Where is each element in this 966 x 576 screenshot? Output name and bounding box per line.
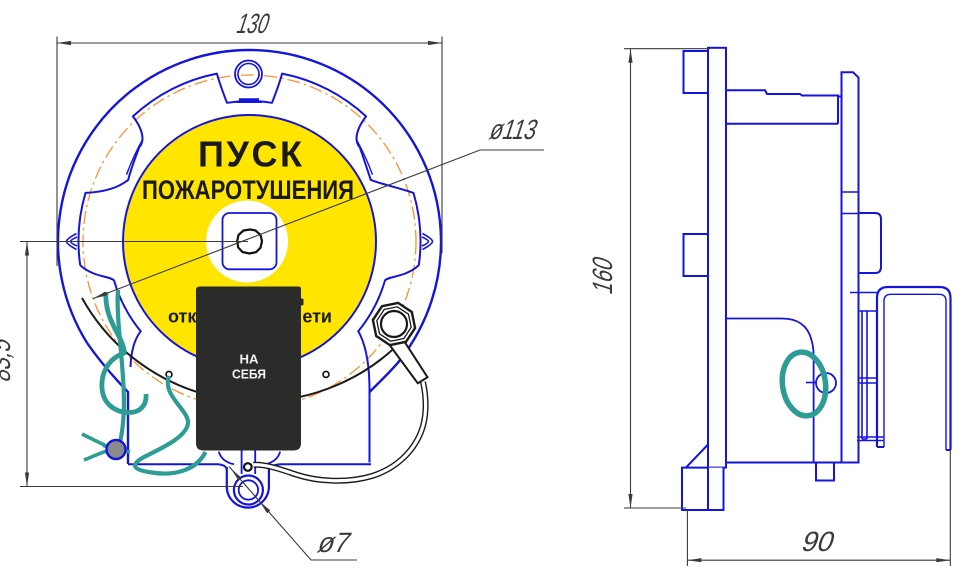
svg-text:ø113: ø113 [486, 115, 542, 146]
svg-text:НА: НА [240, 352, 260, 367]
svg-text:СЕБЯ: СЕБЯ [232, 367, 266, 382]
svg-text:130: 130 [233, 9, 274, 40]
svg-text:90: 90 [798, 527, 839, 558]
svg-text:ø7: ø7 [314, 528, 355, 559]
svg-text:160: 160 [588, 253, 619, 298]
svg-text:83,5: 83,5 [0, 333, 17, 385]
svg-text:отк: отк [168, 306, 197, 326]
svg-text:ПОЖАРОТУШЕНИЯ: ПОЖАРОТУШЕНИЯ [142, 175, 354, 205]
svg-text:ПУСК: ПУСК [198, 134, 303, 175]
svg-text:ети: ети [302, 306, 332, 326]
